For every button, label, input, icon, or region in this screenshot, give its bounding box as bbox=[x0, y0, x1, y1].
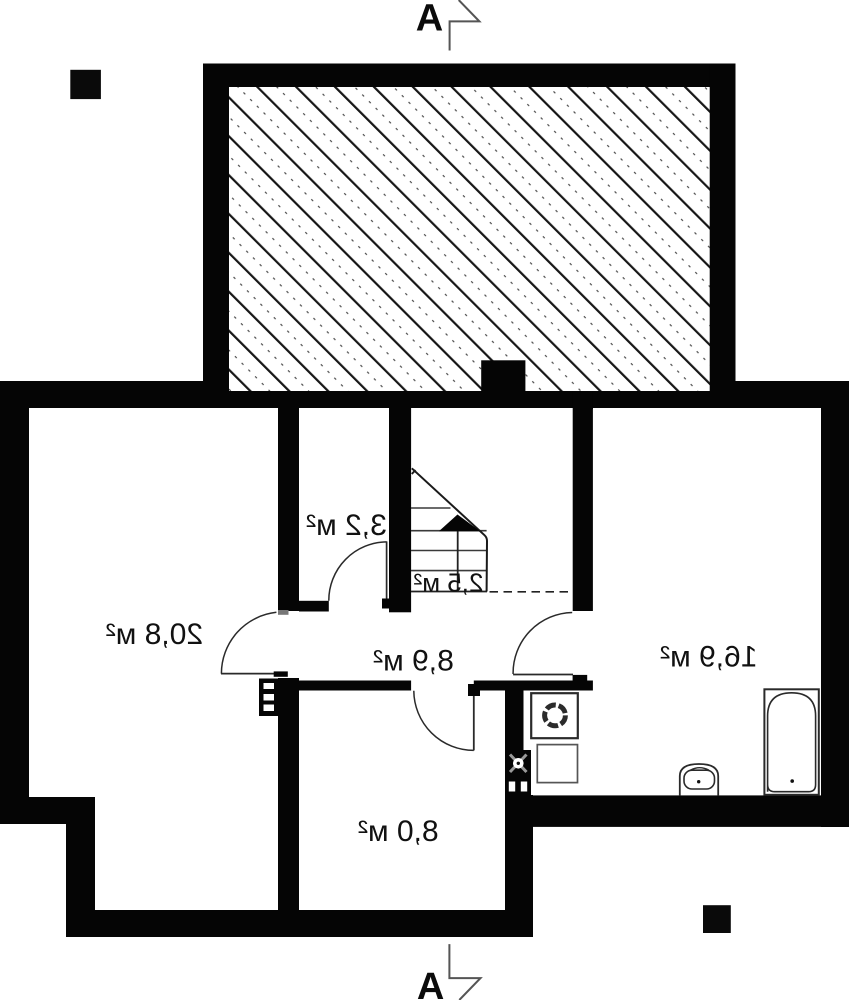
svg-text:8,9 м²: 8,9 м² bbox=[373, 645, 454, 678]
svg-text:16,9 м²: 16,9 м² bbox=[660, 641, 757, 674]
svg-text:2,5 м²: 2,5 м² bbox=[413, 567, 483, 597]
svg-text:A: A bbox=[416, 0, 443, 40]
svg-text:3,2 м²: 3,2 м² bbox=[306, 509, 387, 542]
svg-text:A: A bbox=[417, 966, 444, 1000]
svg-text:20,8 м²: 20,8 м² bbox=[106, 618, 203, 651]
svg-text:8,0 м²: 8,0 м² bbox=[358, 815, 439, 848]
